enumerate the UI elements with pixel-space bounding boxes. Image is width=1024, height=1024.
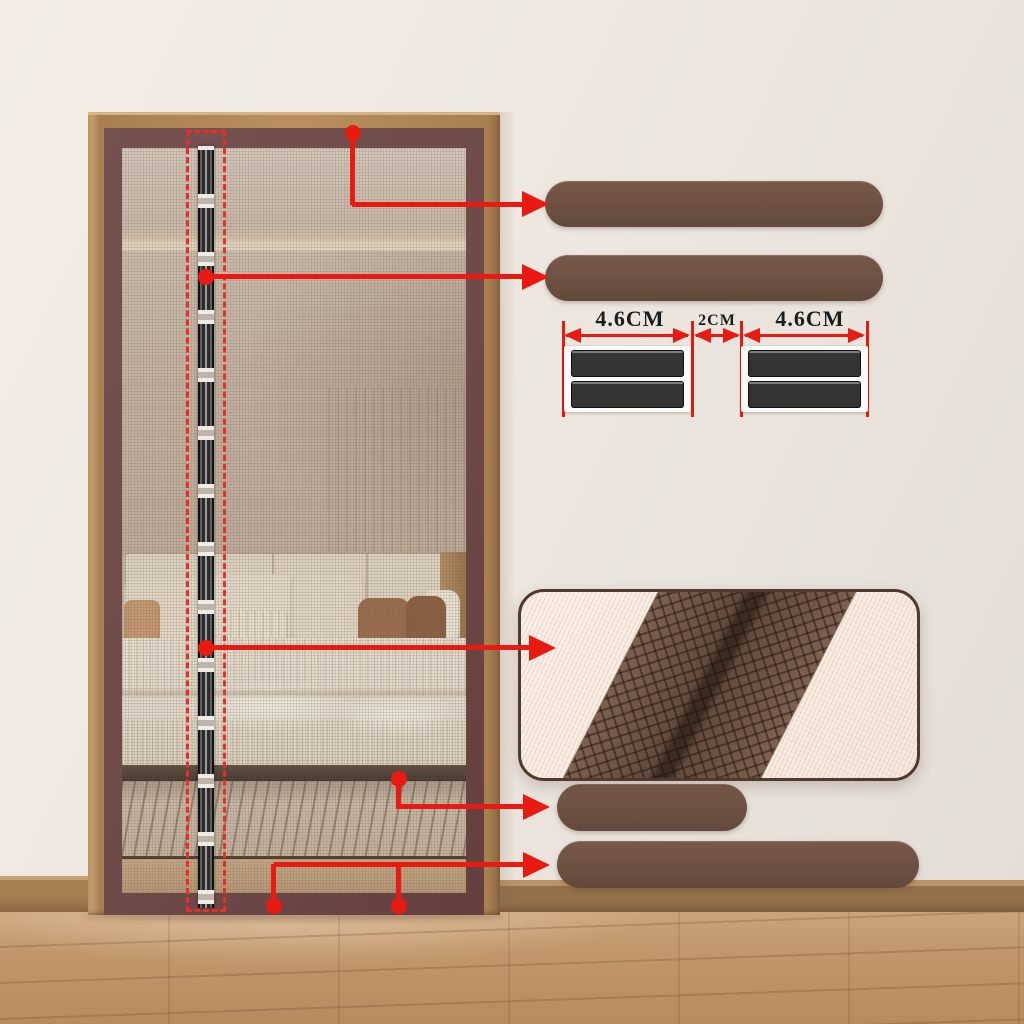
- mesh-zoom-detail-panel: [518, 589, 920, 781]
- callout-line: [396, 804, 523, 809]
- adhesive-tape-pair-left: [564, 346, 691, 412]
- dimension-label-right: 4.6CM: [755, 308, 865, 330]
- adhesive-tape-pair-right: [741, 346, 868, 412]
- dimension-arrow-icon: [745, 334, 863, 337]
- bottom-strip-short: [557, 784, 747, 831]
- callout-arrow-icon: [529, 635, 556, 661]
- adhesive-tape: [571, 381, 684, 408]
- top-frame-strip-2: [545, 255, 883, 301]
- dimension-arrow-icon: [566, 334, 688, 337]
- magnetic-strip-zoom: [535, 589, 882, 781]
- callout-arrow-icon: [523, 794, 550, 820]
- callout-line: [350, 133, 355, 205]
- dimension-label-center: 2CM: [686, 313, 748, 329]
- callout-line: [206, 274, 522, 279]
- door-frame-shadow: [500, 112, 516, 902]
- callout-arrow-icon: [522, 191, 549, 217]
- highlight-dashed-box: [186, 130, 226, 912]
- callout-line: [206, 645, 529, 650]
- callout-line: [396, 864, 401, 904]
- mesh-texture-overlay: [122, 148, 466, 893]
- screen-mesh: [122, 148, 466, 893]
- adhesive-tape: [748, 350, 861, 377]
- adhesive-tape: [571, 350, 684, 377]
- bottom-strip-long: [557, 841, 919, 888]
- product-annotation-image: 4.6CM 2CM 4.6CM: [0, 0, 1024, 1024]
- callout-arrow-icon: [523, 852, 550, 878]
- top-frame-strip-1: [545, 181, 883, 227]
- wood-floor: [0, 912, 1024, 1024]
- callout-line: [271, 864, 276, 904]
- dimension-arrow-icon: [696, 334, 738, 337]
- callout-arrow-icon: [522, 264, 549, 290]
- baseboard-left: [0, 876, 88, 912]
- callout-line: [274, 862, 523, 867]
- adhesive-tape: [748, 381, 861, 408]
- dimension-label-left: 4.6CM: [575, 308, 685, 330]
- callout-line: [352, 202, 522, 207]
